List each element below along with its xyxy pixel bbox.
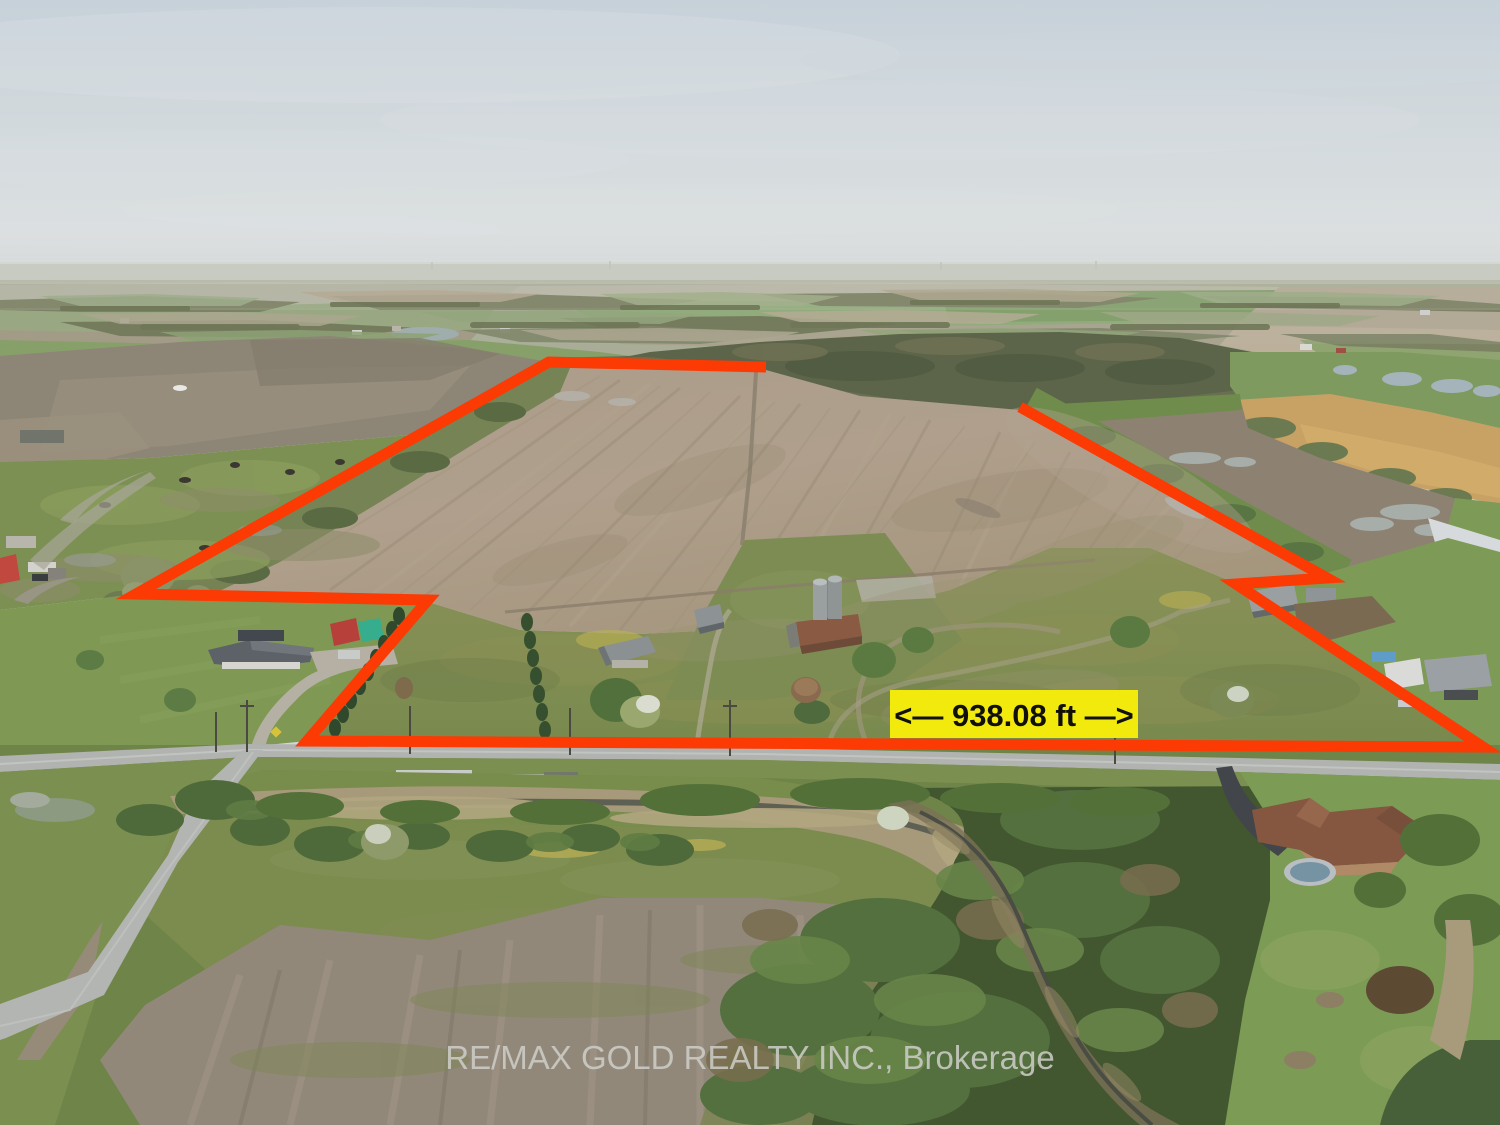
- svg-text:<— 938.08 ft —>: <— 938.08 ft —>: [894, 698, 1134, 733]
- svg-text:RE/MAX GOLD REALTY INC., Broke: RE/MAX GOLD REALTY INC., Brokerage: [445, 1039, 1054, 1076]
